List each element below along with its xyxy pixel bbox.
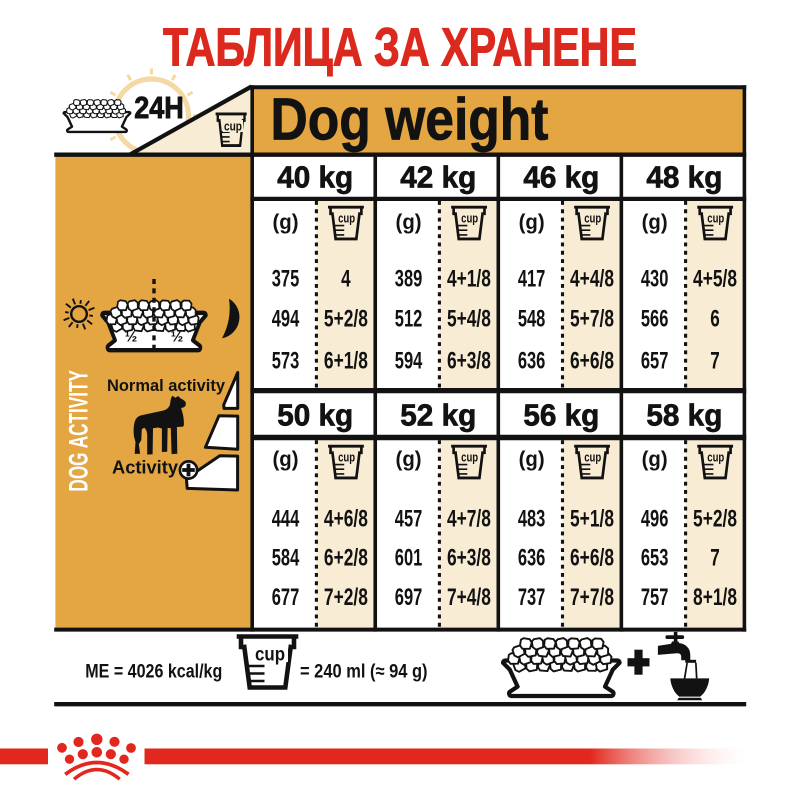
- svg-text:494: 494: [272, 305, 300, 332]
- svg-text:6+3/8: 6+3/8: [447, 545, 491, 572]
- svg-text:24H: 24H: [134, 92, 184, 125]
- svg-text:584: 584: [272, 545, 300, 572]
- svg-text:4+6/8: 4+6/8: [324, 505, 368, 532]
- svg-text:4+1/8: 4+1/8: [447, 266, 491, 293]
- svg-text:7: 7: [710, 347, 720, 374]
- svg-text:50 kg: 50 kg: [277, 397, 353, 432]
- svg-text:cup: cup: [224, 120, 242, 134]
- svg-text:6: 6: [710, 305, 720, 332]
- svg-text:Dog weight: Dog weight: [271, 85, 549, 152]
- svg-text:548: 548: [518, 305, 546, 332]
- svg-text:677: 677: [272, 584, 300, 611]
- svg-text:cup: cup: [707, 451, 724, 465]
- svg-text:5+4/8: 5+4/8: [447, 305, 491, 332]
- svg-text:58 kg: 58 kg: [646, 397, 722, 432]
- svg-text:42 kg: 42 kg: [400, 159, 476, 194]
- svg-text:ТАБЛИЦА ЗА ХРАНЕНЕ: ТАБЛИЦА ЗА ХРАНЕНЕ: [163, 18, 637, 77]
- svg-text:(g): (g): [273, 210, 299, 234]
- svg-text:cup: cup: [255, 644, 285, 666]
- svg-text:cup: cup: [461, 451, 478, 465]
- svg-text:7+4/8: 7+4/8: [447, 584, 491, 611]
- svg-text:cup: cup: [461, 212, 478, 226]
- svg-text:48 kg: 48 kg: [646, 159, 722, 194]
- svg-text:417: 417: [518, 266, 546, 293]
- svg-text:(g): (g): [642, 447, 668, 471]
- svg-text:636: 636: [518, 545, 546, 572]
- svg-text:4+4/8: 4+4/8: [570, 266, 614, 293]
- svg-text:6+3/8: 6+3/8: [447, 347, 491, 374]
- svg-text:594: 594: [395, 347, 423, 374]
- svg-text:(g): (g): [396, 210, 422, 234]
- svg-text:cup: cup: [338, 451, 355, 465]
- svg-text:(g): (g): [519, 210, 545, 234]
- svg-text:(g): (g): [273, 447, 299, 471]
- svg-text:5+2/8: 5+2/8: [693, 505, 737, 532]
- svg-text:cup: cup: [338, 212, 355, 226]
- svg-text:657: 657: [641, 347, 669, 374]
- svg-text:56 kg: 56 kg: [523, 397, 599, 432]
- svg-text:653: 653: [641, 545, 669, 572]
- svg-text:601: 601: [395, 545, 423, 572]
- svg-text:444: 444: [272, 505, 300, 532]
- svg-text:573: 573: [272, 347, 300, 374]
- svg-text:= 240 ml (≈ 94 g): = 240 ml (≈ 94 g): [300, 660, 428, 682]
- svg-text:737: 737: [518, 584, 546, 611]
- svg-text:4+7/8: 4+7/8: [447, 505, 491, 532]
- svg-text:cup: cup: [707, 212, 724, 226]
- svg-text:½: ½: [171, 329, 184, 346]
- svg-text:6+1/8: 6+1/8: [324, 347, 368, 374]
- svg-text:389: 389: [395, 266, 423, 293]
- svg-text:5+1/8: 5+1/8: [570, 505, 614, 532]
- svg-text:4: 4: [341, 266, 351, 293]
- svg-text:40 kg: 40 kg: [277, 159, 353, 194]
- svg-text:457: 457: [395, 505, 423, 532]
- svg-text:6+2/8: 6+2/8: [324, 545, 368, 572]
- svg-text:cup: cup: [584, 451, 601, 465]
- svg-text:430: 430: [641, 266, 669, 293]
- svg-text:cup: cup: [584, 212, 601, 226]
- svg-text:4+5/8: 4+5/8: [693, 266, 737, 293]
- svg-text:483: 483: [518, 505, 546, 532]
- svg-text:636: 636: [518, 347, 546, 374]
- svg-text:46 kg: 46 kg: [523, 159, 599, 194]
- svg-text:496: 496: [641, 505, 669, 532]
- svg-text:7+7/8: 7+7/8: [570, 584, 614, 611]
- svg-text:52 kg: 52 kg: [400, 397, 476, 432]
- svg-text:697: 697: [395, 584, 423, 611]
- svg-text:DOG ACTIVITY: DOG ACTIVITY: [63, 370, 93, 492]
- svg-text:6+6/8: 6+6/8: [570, 347, 614, 374]
- svg-text:Activity: Activity: [112, 458, 178, 478]
- svg-text:6+6/8: 6+6/8: [570, 545, 614, 572]
- svg-text:(g): (g): [519, 447, 545, 471]
- svg-text:½: ½: [125, 329, 138, 346]
- svg-text:757: 757: [641, 584, 669, 611]
- svg-text:ME = 4026 kcal/kg: ME = 4026 kcal/kg: [85, 660, 222, 682]
- svg-text:5+7/8: 5+7/8: [570, 305, 614, 332]
- svg-text:5+2/8: 5+2/8: [324, 305, 368, 332]
- svg-text:512: 512: [395, 305, 423, 332]
- svg-text:8+1/8: 8+1/8: [693, 584, 737, 611]
- svg-text:7+2/8: 7+2/8: [324, 584, 368, 611]
- svg-text:(g): (g): [642, 210, 668, 234]
- svg-text:375: 375: [272, 266, 300, 293]
- svg-text:(g): (g): [396, 447, 422, 471]
- svg-text:7: 7: [710, 545, 720, 572]
- svg-text:Normal activity: Normal activity: [107, 376, 226, 395]
- svg-text:566: 566: [641, 305, 669, 332]
